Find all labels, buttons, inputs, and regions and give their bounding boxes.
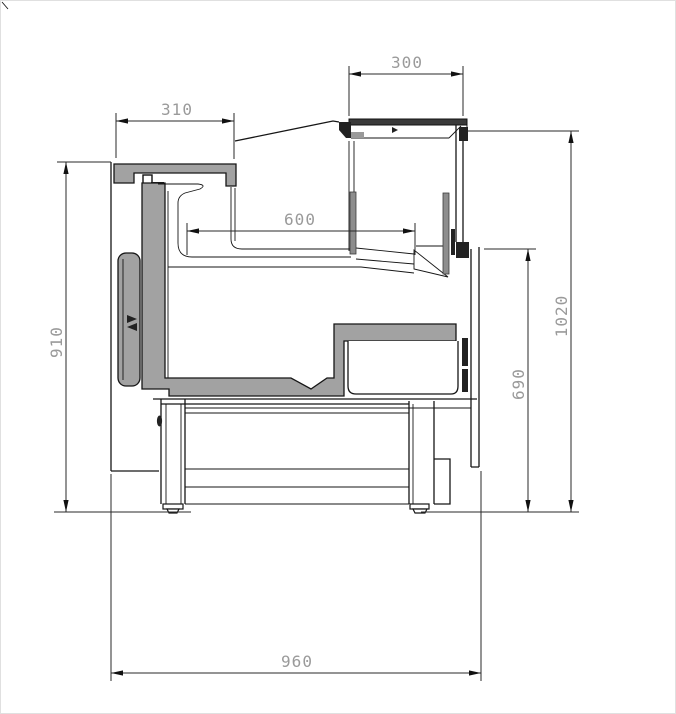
front-glass-slope — [235, 121, 339, 141]
dimension-label-1020: 1020 — [552, 295, 571, 338]
front-countertop — [114, 164, 236, 186]
dimension-label-960: 960 — [281, 652, 313, 671]
machine-compartment — [348, 341, 458, 394]
canopy-front-endcap — [339, 122, 351, 138]
technical-drawing-page: 310 300 600 910 1020 690 9 — [0, 0, 676, 714]
shelf-glass-rear — [443, 193, 449, 274]
canopy-underside — [351, 125, 467, 141]
dimension-label-910: 910 — [47, 326, 66, 358]
dimension-label-300: 300 — [391, 53, 423, 72]
rear-panel-lower — [471, 247, 479, 467]
left-leg-inner-lines — [166, 404, 181, 504]
display-deck-rear-lines — [356, 246, 443, 264]
dimension-label-600: 600 — [284, 210, 316, 229]
dimension-overall-depth: 960 — [111, 471, 481, 681]
dimension-label-690: 690 — [509, 368, 528, 400]
shelf-glass-front — [350, 192, 356, 254]
base-bottom-lines — [153, 399, 477, 404]
dimension-overall-height: 1020 — [421, 131, 579, 512]
left-foot-plate — [163, 504, 183, 509]
canopy-rear-block — [459, 127, 468, 141]
dimension-display-depth: 600 — [187, 210, 415, 255]
dimension-rear-height: 690 — [484, 249, 536, 512]
display-deck-lower-line — [168, 267, 414, 273]
dimension-label-310: 310 — [161, 100, 193, 119]
rear-wall-joint-block — [456, 242, 469, 258]
cross-section-drawing: 310 300 600 910 1020 690 9 — [1, 1, 676, 714]
left-leg-bolt — [157, 416, 162, 427]
canopy-lamp-strip — [351, 132, 364, 138]
counter-body — [111, 119, 479, 513]
scan-artifact-mark — [2, 2, 8, 9]
dimension-countertop-width: 310 — [116, 100, 234, 159]
rear-wall-upper — [456, 125, 463, 242]
canopy-top-slab — [349, 119, 467, 125]
canopy-detail-mark — [392, 127, 398, 133]
base-rails — [185, 408, 471, 504]
right-leg-bracket — [434, 459, 450, 504]
dimension-canopy-width: 300 — [349, 53, 463, 116]
rear-hinge-lower — [462, 369, 468, 392]
rear-hinge-upper — [462, 338, 468, 366]
rear-wall-vent-bar — [451, 229, 455, 255]
right-foot-plate — [410, 504, 429, 509]
